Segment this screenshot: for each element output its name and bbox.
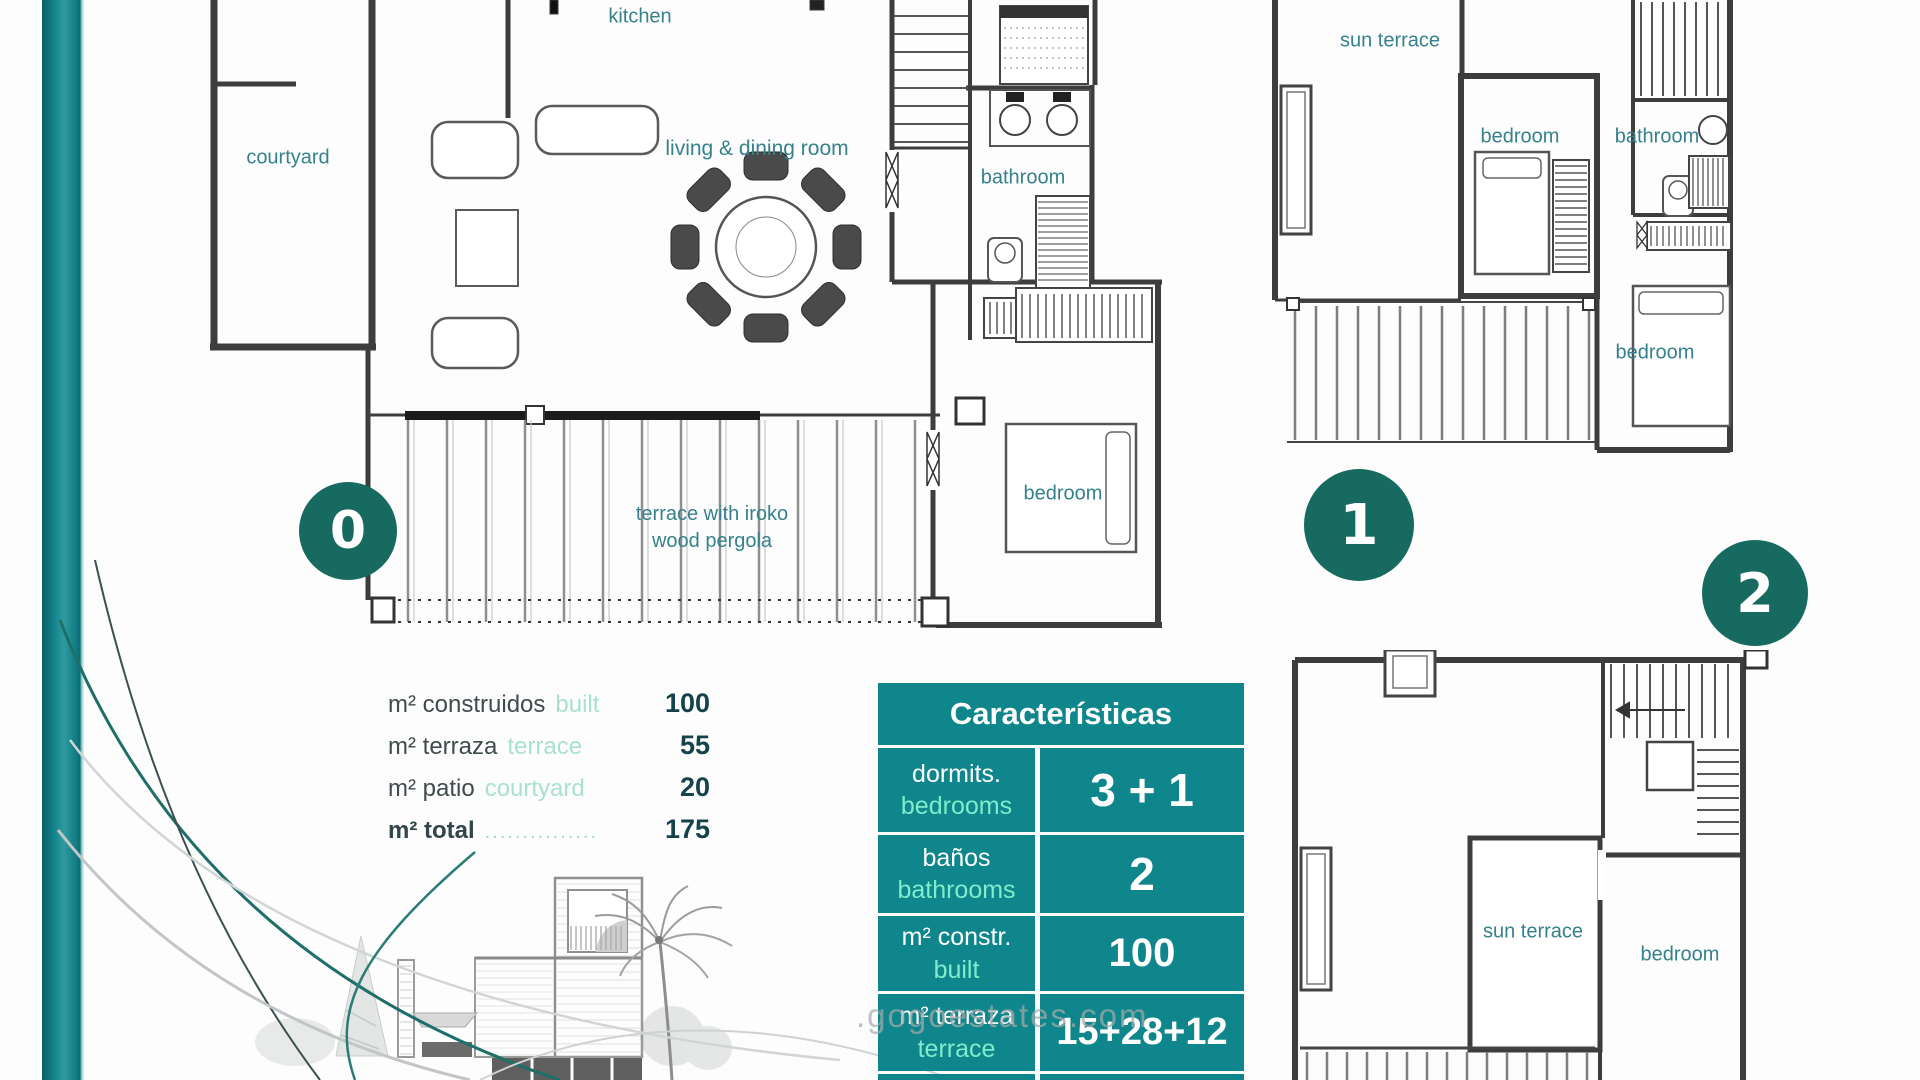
room-label-kitchen: kitchen [608,6,671,29]
row-label-en: bathrooms [897,874,1015,907]
left-accent-bar [42,0,84,1080]
room-label-sun-terrace-2: sun terrace [1483,921,1583,944]
room-label-sun-terrace-1: sun terrace [1340,30,1440,53]
floorplan-level-1: sun terrace bedroom bathroom bedroom [1265,0,1755,458]
row-label: m² constr. built [878,916,1035,991]
room-label-bedroom-0: bedroom [1024,483,1103,506]
floor-badge-1: 1 [1304,469,1414,581]
measure-label-es: m² construidos [388,691,545,719]
row-label-es: baños [922,842,990,875]
room-label-courtyard: courtyard [246,147,329,170]
table-row-partial: m² [878,1074,1244,1080]
row-label-es: m² constr. [902,921,1012,954]
row-label: baños bathrooms [878,835,1035,913]
measure-row-built: m² construidos built 100 [388,688,710,719]
room-label-bedroom-1b: bedroom [1616,342,1695,365]
level1-deck [1287,298,1595,442]
measure-label-en: built [555,691,599,719]
row-label: m² [878,1074,1035,1080]
level2-planter [1301,848,1331,990]
measure-label-es: m² total [388,817,475,845]
table-row-bedrooms: dormits. bedrooms 3 + 1 [878,748,1244,832]
measure-value: 175 [665,814,710,845]
measure-row-courtyard: m² patio courtyard 20 [388,772,710,803]
dresser [1000,6,1088,84]
stairs [894,0,970,148]
floorplan-level-2-drawing [1285,650,1795,1080]
table-row-bathrooms: baños bathrooms 2 [878,835,1244,913]
measure-row-total: m² total ............... 175 [388,814,710,845]
measure-label-en: terrace [507,733,582,761]
level1-bedroom1-furniture [1475,152,1589,274]
measure-value: 55 [680,730,710,761]
floorplan-level-1-drawing [1265,0,1755,458]
watermark-text: .gogoestates.com [856,997,1149,1035]
level1-planter [1281,86,1311,234]
bedroom-furniture [1006,288,1152,552]
row-value: 2 [1040,835,1244,913]
surface-measurements: m² construidos built 100 m² terraza terr… [388,688,710,856]
characteristics-title: Características [878,683,1244,745]
measure-label-es: m² patio [388,775,475,803]
level2-chimney [1385,650,1435,696]
floor-badge-0: 0 [299,482,397,580]
floor-badge-2: 2 [1702,540,1808,646]
measure-value: 20 [680,772,710,803]
level2-stairs [1611,664,1739,834]
measure-label-es: m² terraza [388,733,497,761]
level1-stairs [1633,0,1730,100]
floorplan-brochure-page: kitchen courtyard living & dining room b… [0,0,1920,1080]
terrace-label-line1: terrace with iroko [582,501,842,528]
sketch-building [398,878,642,1080]
row-value: 100 [1040,916,1244,991]
level2-sun-terrace-room [1470,838,1606,1050]
measure-value: 100 [665,688,710,719]
terrace-label-line2: wood pergola [582,528,842,555]
table-row-built: m² constr. built 100 [878,916,1244,991]
room-label-terrace-pergola: terrace with iroko wood pergola [582,501,842,555]
row-label-en: terrace [918,1033,996,1066]
room-label-bedroom-2: bedroom [1641,944,1720,967]
measure-label-en: courtyard [485,775,585,803]
villa-sketch [240,850,740,1080]
level2-deck [1300,1048,1595,1080]
row-value: 3 + 1 [1040,748,1244,832]
measure-leader-dots: ............... [485,821,598,844]
room-label-bathroom-1: bathroom [1615,126,1700,149]
room-label-bedroom-1a: bedroom [1481,126,1560,149]
floorplan-level-2: sun terrace bedroom [1285,650,1795,1080]
room-label-bathroom-0: bathroom [981,167,1066,190]
living-room-furniture [432,106,658,368]
villa-sketch-drawing [240,850,740,1080]
row-label: dormits. bedrooms [878,748,1035,832]
room-label-living-dining: living & dining room [665,137,848,161]
dining-table [671,152,861,342]
row-label-en: bedrooms [901,790,1012,823]
courtyard-walls [210,0,376,350]
row-label-es: dormits. [912,758,1001,791]
row-value [1040,1074,1244,1080]
row-label-en: built [934,954,980,987]
measure-row-terrace: m² terraza terrace 55 [388,730,710,761]
